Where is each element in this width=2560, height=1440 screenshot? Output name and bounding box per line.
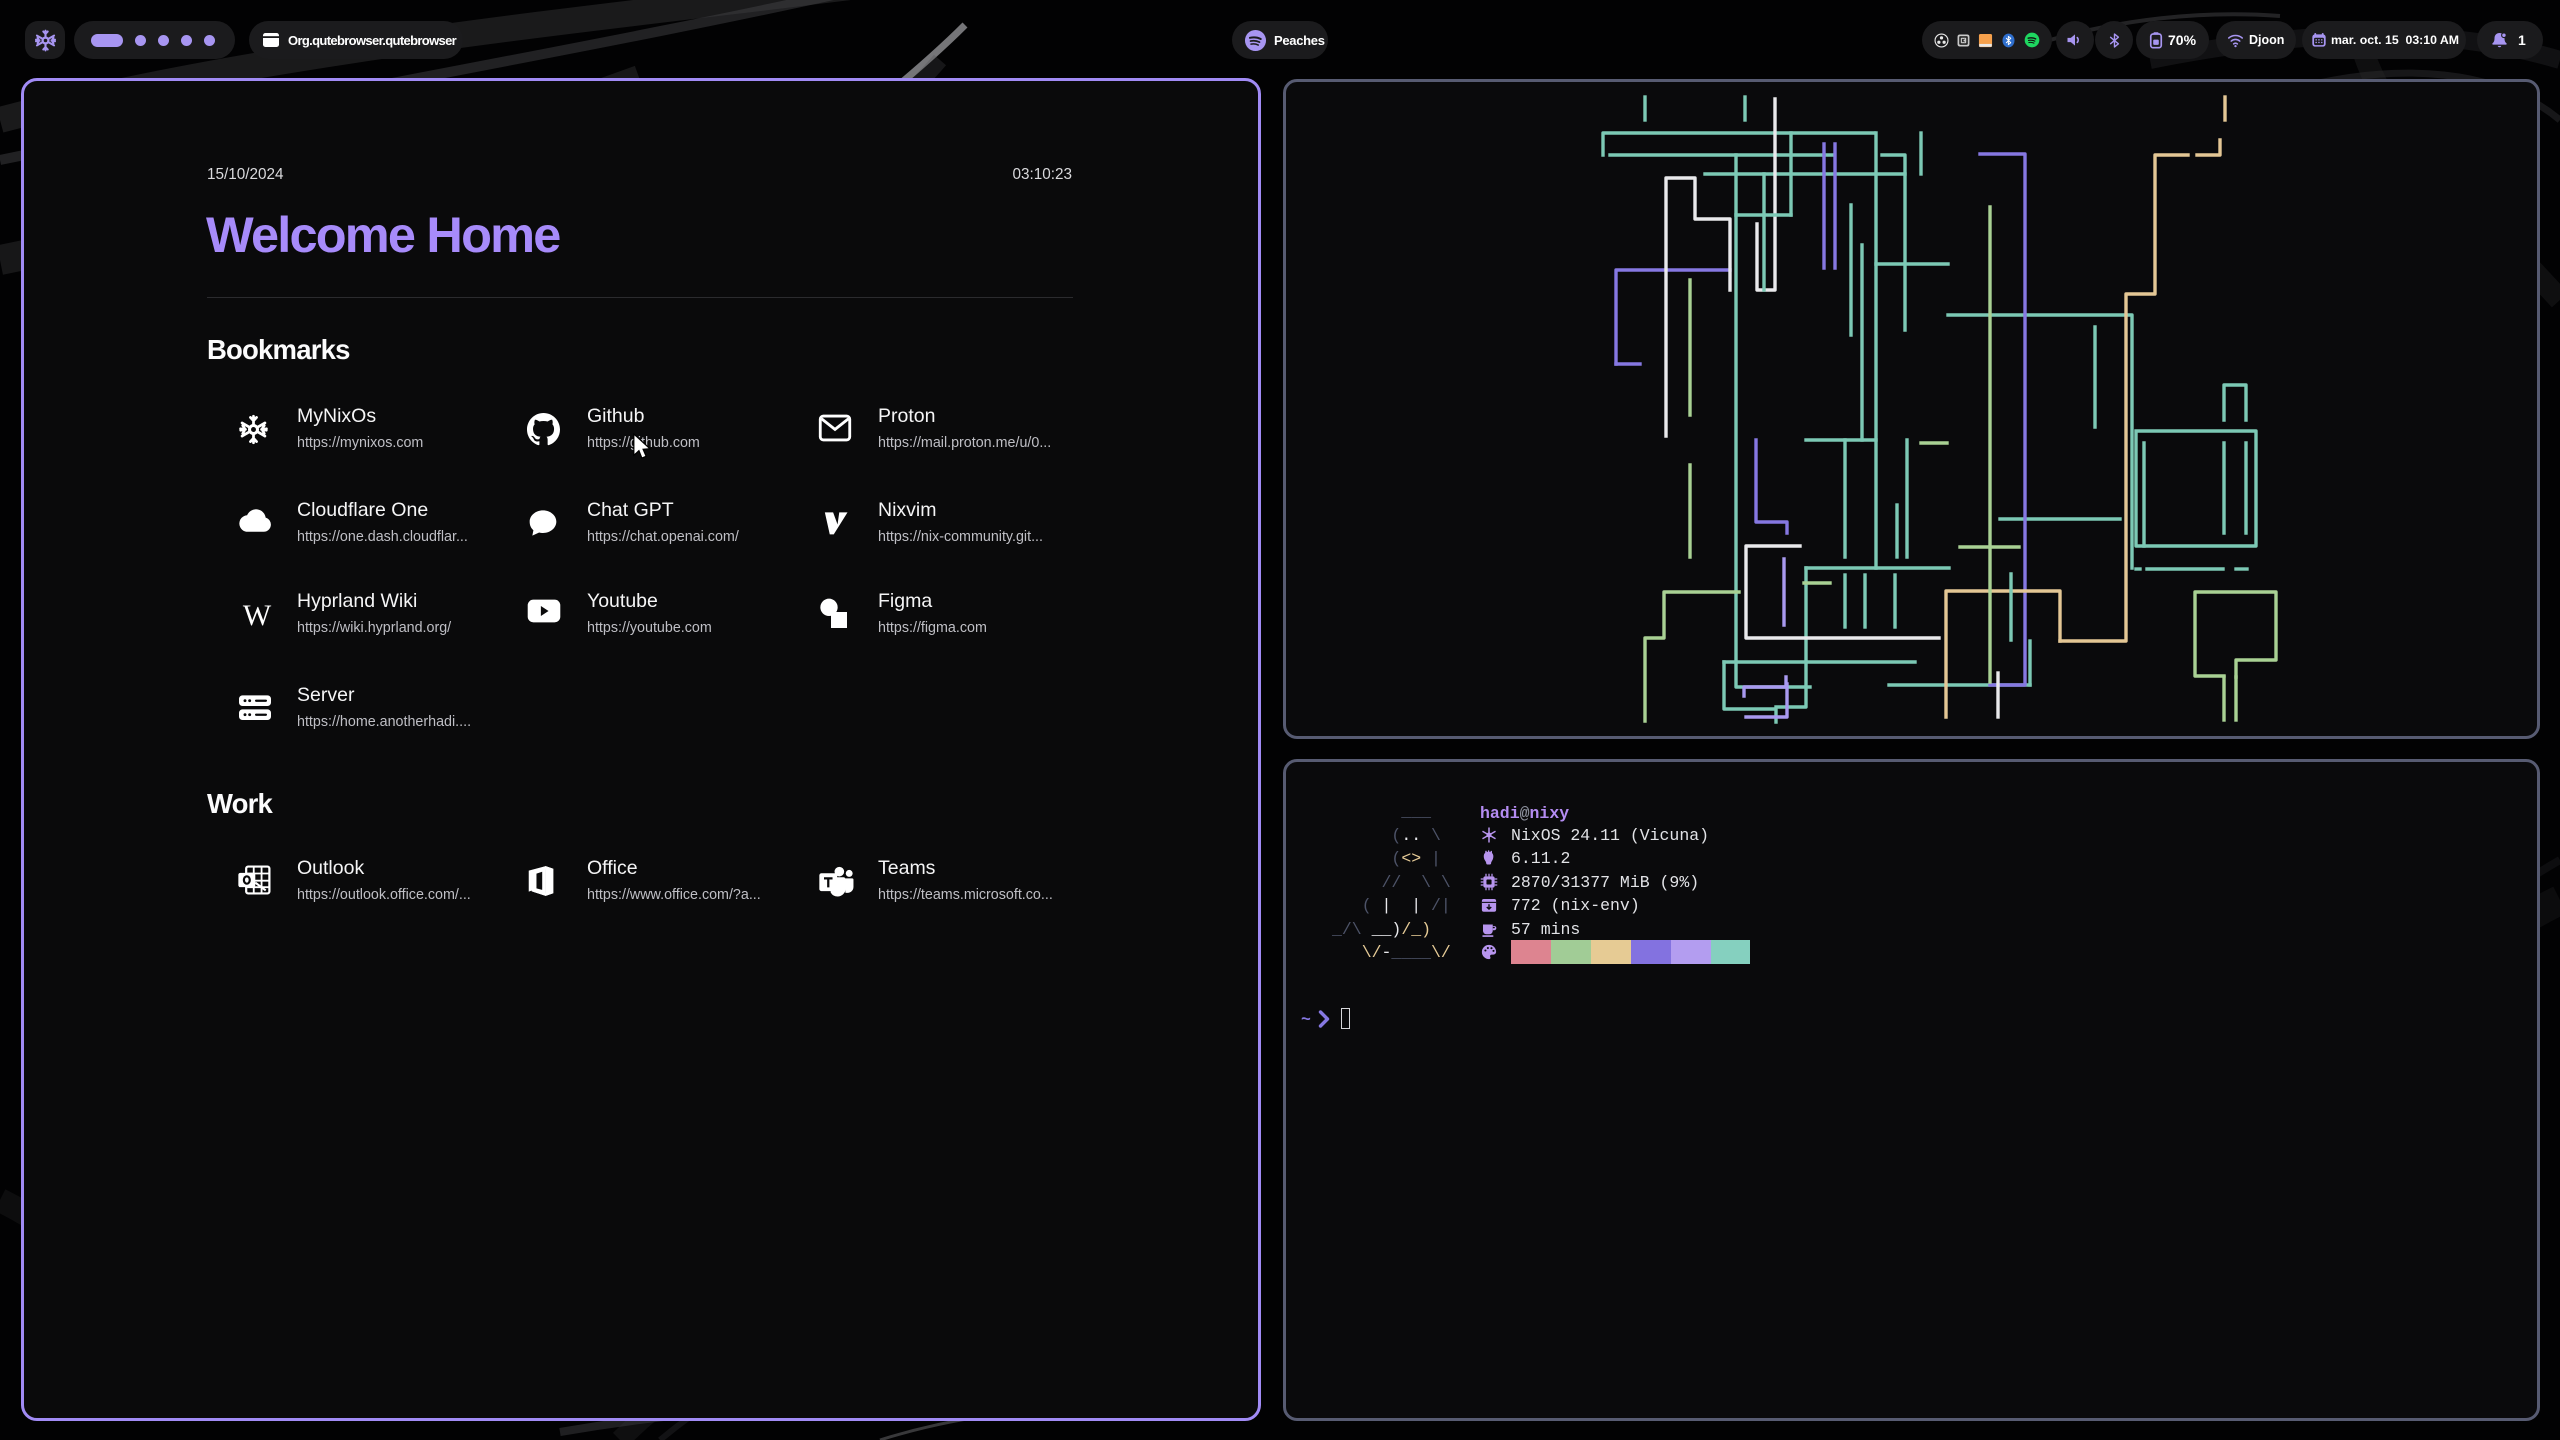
svg-text:W: W bbox=[243, 599, 272, 632]
